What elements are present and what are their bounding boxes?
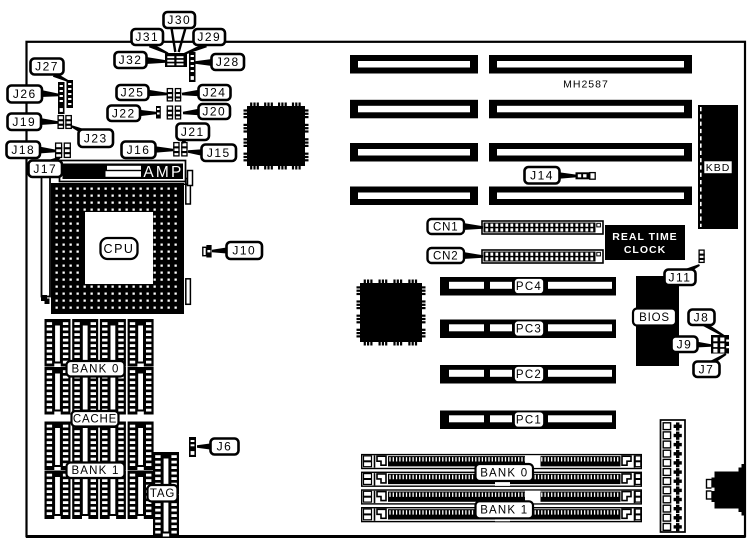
svg-text:AMP: AMP	[143, 164, 183, 181]
svg-text:PC1: PC1	[516, 415, 542, 427]
svg-text:J26: J26	[13, 87, 37, 101]
svg-text:J23: J23	[84, 131, 108, 145]
svg-text:J24: J24	[203, 86, 227, 100]
svg-text:J7: J7	[699, 362, 715, 376]
svg-text:J17: J17	[33, 162, 57, 176]
svg-text:PC3: PC3	[516, 324, 542, 336]
svg-text:KBD: KBD	[706, 162, 731, 174]
svg-text:CACHE: CACHE	[73, 414, 117, 426]
svg-text:J31: J31	[135, 30, 159, 44]
svg-text:J21: J21	[181, 125, 205, 139]
svg-text:BIOS: BIOS	[639, 312, 670, 324]
svg-text:J8: J8	[694, 310, 710, 324]
svg-text:J15: J15	[207, 146, 231, 160]
svg-text:MH2587: MH2587	[563, 79, 609, 91]
svg-text:CPU: CPU	[104, 242, 135, 256]
svg-text:J11: J11	[669, 270, 692, 284]
svg-text:J25: J25	[121, 86, 145, 100]
svg-text:J32: J32	[119, 53, 143, 67]
svg-text:J16: J16	[127, 143, 151, 157]
svg-text:BANK 1: BANK 1	[71, 465, 119, 477]
svg-text:J19: J19	[12, 115, 36, 129]
svg-text:J28: J28	[216, 55, 240, 69]
svg-text:J18: J18	[11, 143, 35, 157]
svg-text:J29: J29	[197, 30, 221, 44]
svg-text:CN2: CN2	[433, 250, 458, 262]
svg-text:TAG: TAG	[150, 488, 175, 500]
svg-text:PC4: PC4	[516, 281, 542, 293]
svg-text:J9: J9	[677, 337, 693, 351]
svg-text:J14: J14	[530, 168, 554, 182]
svg-text:BANK 1: BANK 1	[480, 505, 528, 517]
svg-text:CN1: CN1	[433, 221, 458, 233]
svg-text:PC2: PC2	[516, 369, 542, 381]
svg-text:J30: J30	[167, 13, 191, 27]
svg-text:J20: J20	[202, 105, 226, 119]
svg-text:CLOCK: CLOCK	[624, 244, 666, 256]
svg-text:J22: J22	[112, 106, 136, 120]
svg-text:J6: J6	[217, 440, 233, 454]
svg-text:REAL TIME: REAL TIME	[612, 231, 677, 243]
svg-text:BANK 0: BANK 0	[480, 467, 528, 479]
svg-text:BANK 0: BANK 0	[71, 364, 119, 376]
svg-text:J10: J10	[232, 244, 256, 258]
svg-text:J27: J27	[35, 60, 59, 74]
